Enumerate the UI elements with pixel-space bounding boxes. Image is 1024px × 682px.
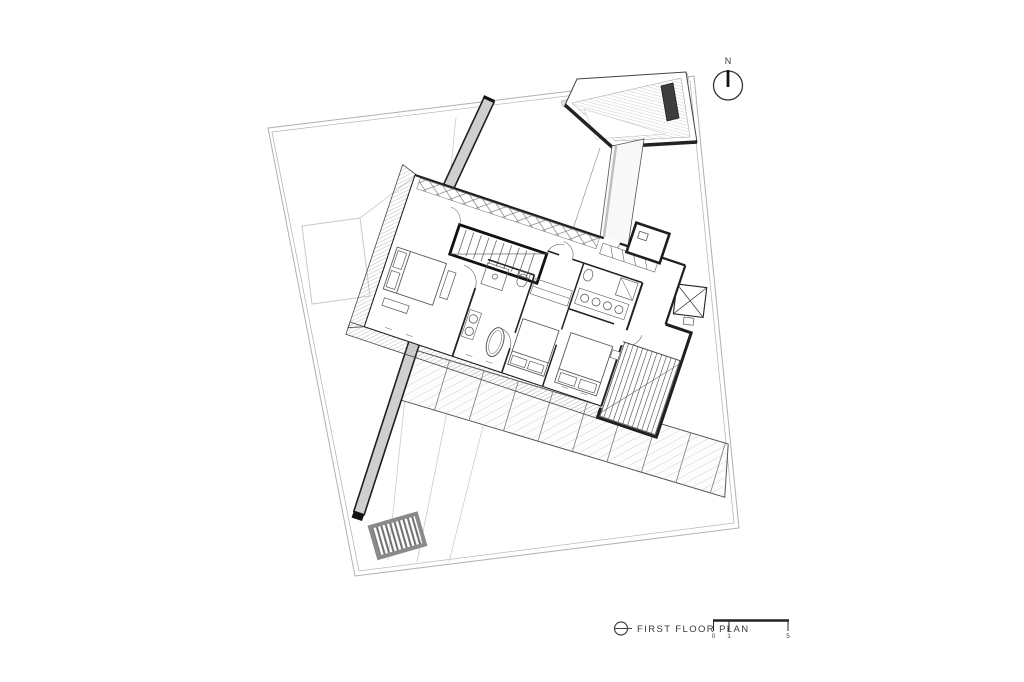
scale-label-5: 5 [786, 633, 790, 640]
north-label: N [725, 56, 732, 66]
scale-label-0: 0 [712, 633, 716, 640]
plan-title: FIRST FLOOR PLAN [637, 624, 750, 635]
north-indicator: N [714, 56, 743, 100]
floor-level-marker-icon [615, 622, 633, 635]
floor-plan-canvas: N FIRST FLOOR PLAN 0 1 5 [0, 0, 1024, 682]
drain-grate [370, 514, 425, 558]
garden-wall-upper [443, 97, 495, 191]
garden-wall-lower [352, 332, 423, 521]
title-block: FIRST FLOOR PLAN 0 1 5 [615, 620, 791, 640]
floor-plan-sheet: N FIRST FLOOR PLAN 0 1 5 [0, 0, 1024, 682]
terrace-outline [302, 218, 370, 304]
pool-area [561, 72, 697, 147]
scale-label-1: 1 [727, 633, 731, 640]
